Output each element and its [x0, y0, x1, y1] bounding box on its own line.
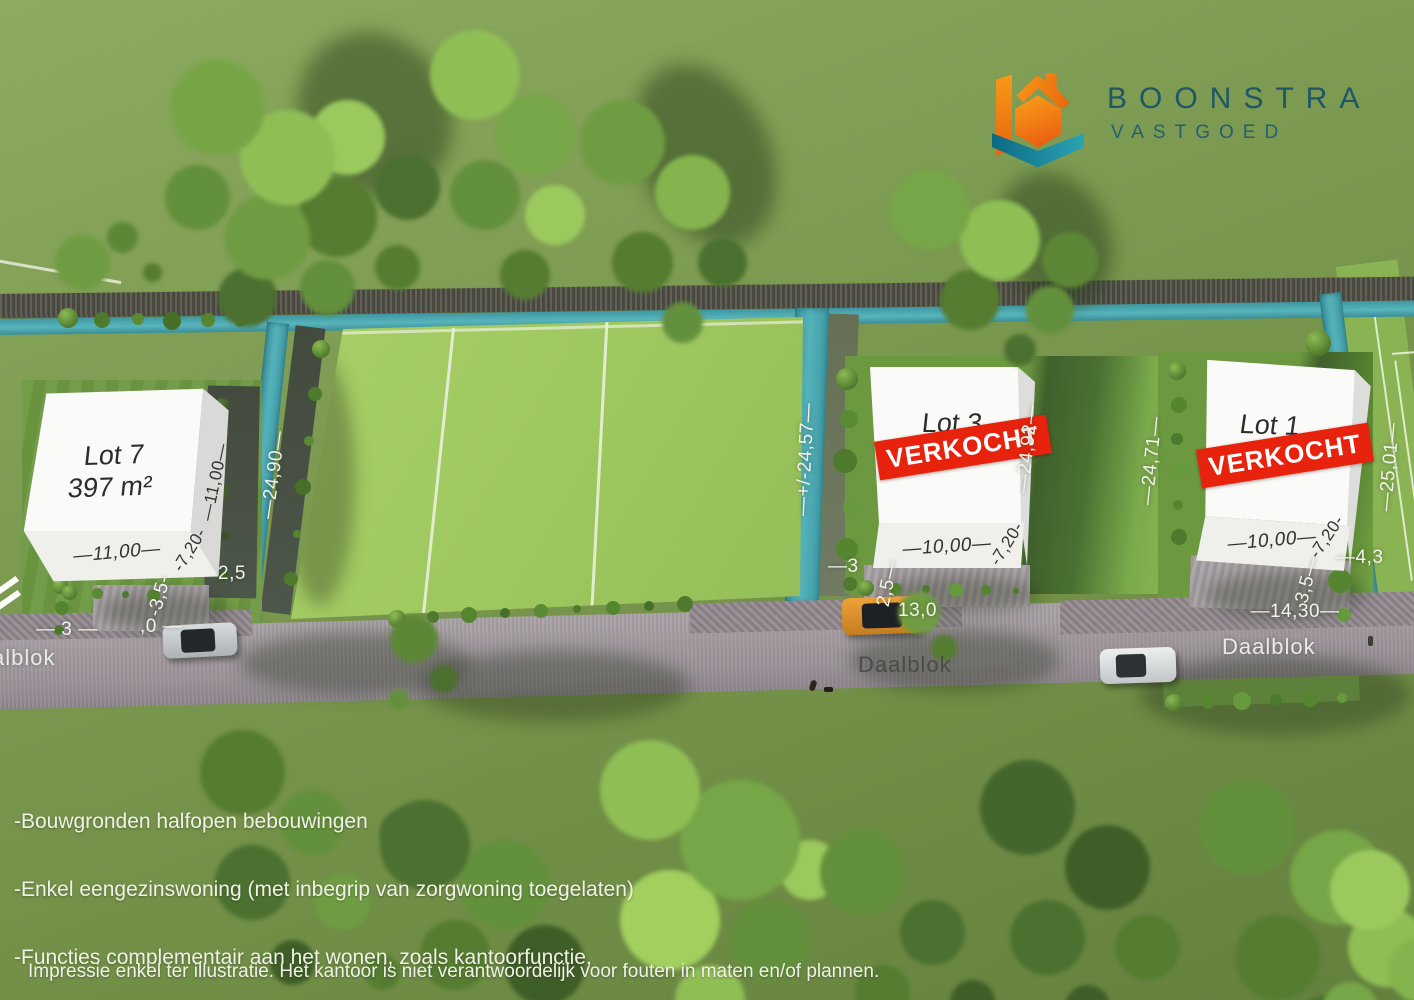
- field-divider-line: [422, 328, 455, 615]
- dimension-3-left: — 3 —: [36, 619, 98, 641]
- dimension-2-5-lot7: 2,5: [218, 563, 246, 585]
- dimension-0-left-partial: ,0 —: [140, 616, 182, 638]
- compass-arrow-partial: [0, 590, 21, 612]
- hedge-canal-left: [312, 340, 330, 358]
- dimension-14-30: —14,30—: [1245, 601, 1345, 623]
- street-name-left-partial: alblok: [0, 645, 55, 671]
- dog-figure: [824, 687, 833, 692]
- hedge-lot1-left: [1168, 362, 1186, 380]
- dimension-13-0: 13,0: [898, 600, 937, 622]
- dimension-3-lot3: —3: [828, 556, 859, 578]
- field-divider-line: [590, 320, 608, 608]
- meadow-field: [255, 315, 815, 627]
- hedge-lot1-front: [1165, 694, 1183, 712]
- logo-inner-hexagon: [1015, 95, 1061, 148]
- car-windshield: [180, 628, 215, 653]
- pedestrian-figure: [1368, 636, 1373, 646]
- tree-canopy: [430, 30, 520, 120]
- site-plan-render: Lot 7 397 m² Lot 3 VERKOCHT Lot 1 VERKOC…: [0, 0, 1414, 1000]
- hedge-row: [58, 308, 78, 328]
- logo-hexagon-icon: [988, 68, 1088, 173]
- disclaimer-text: Impressie enkel ter illustratie. Het kan…: [28, 961, 879, 983]
- tree-canopy: [820, 830, 905, 915]
- tree-canopy: [1330, 850, 1410, 930]
- dimension-4-3: —4,3: [1336, 547, 1383, 569]
- tree-canopy: [55, 235, 110, 290]
- tree-canopy: [170, 60, 265, 155]
- tree-canopy: [580, 100, 665, 185]
- lot7-title: Lot 7: [62, 438, 165, 473]
- hedge-lot1-right-canal: [1305, 330, 1331, 356]
- street-name-right: Daalblok: [1222, 634, 1316, 660]
- lot7-area: 397 m²: [58, 470, 161, 505]
- tree-canopy: [980, 760, 1075, 855]
- hedge-lot3-front: [858, 580, 874, 596]
- parked-car-white: [1099, 647, 1176, 685]
- logo-title: BOONSTRA: [1107, 82, 1371, 116]
- tree-shadow: [1140, 655, 1410, 735]
- tree-canopy: [1200, 780, 1295, 875]
- logo-subtitle: VASTGOED: [1111, 122, 1287, 144]
- tree-canopy: [890, 170, 970, 250]
- car-windshield: [1116, 654, 1147, 678]
- tree-shadow: [420, 650, 690, 722]
- note-line: -Bouwgronden halfopen bebouwingen: [14, 811, 634, 834]
- tree-canopy: [390, 615, 438, 663]
- note-line: -Enkel eengezinswoning (met inbegrip van…: [14, 879, 634, 902]
- street-name-middle: Daalblok: [858, 652, 952, 678]
- brand-logo: BOONSTRA VASTGOED: [985, 60, 1414, 175]
